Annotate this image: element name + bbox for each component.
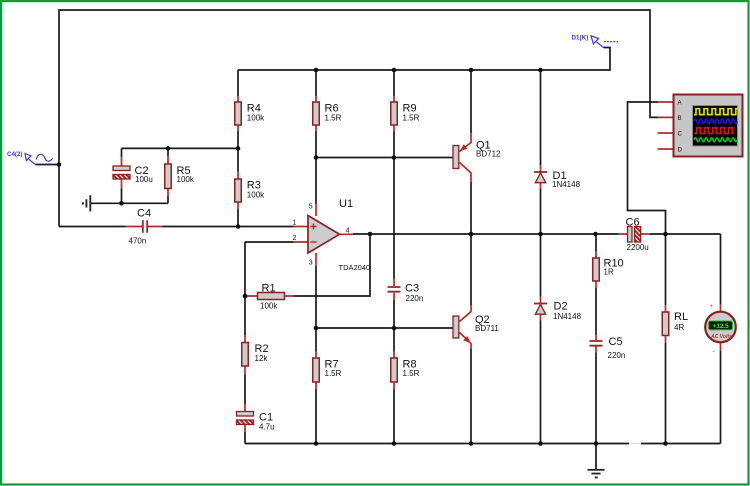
svg-text:1N4148: 1N4148 bbox=[552, 180, 581, 189]
svg-text:D2: D2 bbox=[554, 300, 568, 312]
svg-text:B: B bbox=[678, 115, 682, 122]
svg-text:1R: 1R bbox=[604, 268, 614, 277]
svg-text:1.5R: 1.5R bbox=[403, 113, 420, 122]
svg-text:3: 3 bbox=[309, 260, 313, 267]
svg-text:12k: 12k bbox=[255, 354, 269, 363]
svg-text:1N4148: 1N4148 bbox=[553, 312, 582, 321]
svg-text:BD712: BD712 bbox=[476, 149, 501, 158]
svg-text:2: 2 bbox=[293, 235, 297, 242]
svg-text:220n: 220n bbox=[608, 351, 626, 360]
svg-text:2200u: 2200u bbox=[627, 243, 649, 252]
svg-text:C4(2): C4(2) bbox=[7, 151, 22, 158]
svg-text:4.7u: 4.7u bbox=[259, 423, 275, 432]
svg-text:1.5R: 1.5R bbox=[325, 113, 342, 122]
svg-text:1: 1 bbox=[293, 220, 297, 227]
svg-text:5: 5 bbox=[309, 204, 313, 211]
svg-text:BD711: BD711 bbox=[475, 324, 499, 333]
svg-text:RL: RL bbox=[674, 311, 688, 323]
svg-text:+12.5: +12.5 bbox=[713, 323, 729, 330]
svg-text:D1(K): D1(K) bbox=[572, 35, 589, 42]
svg-text:C6: C6 bbox=[626, 217, 640, 229]
svg-text:1.5R: 1.5R bbox=[325, 369, 342, 378]
svg-text:100u: 100u bbox=[135, 175, 153, 184]
svg-text:4R: 4R bbox=[674, 323, 684, 332]
svg-text:D: D bbox=[678, 147, 683, 154]
svg-text:470n: 470n bbox=[129, 237, 147, 246]
svg-text:100k: 100k bbox=[247, 190, 265, 199]
svg-text:C: C bbox=[678, 131, 683, 138]
svg-text:U1: U1 bbox=[339, 198, 353, 210]
svg-text:TDA2040: TDA2040 bbox=[339, 263, 371, 272]
svg-text:100k: 100k bbox=[177, 175, 195, 184]
svg-text:1.5R: 1.5R bbox=[403, 369, 420, 378]
svg-text:AC Volts: AC Volts bbox=[710, 334, 732, 340]
svg-text:100k: 100k bbox=[247, 113, 265, 122]
svg-text:C4: C4 bbox=[137, 208, 151, 220]
svg-text:C3: C3 bbox=[405, 283, 419, 295]
svg-text:R1: R1 bbox=[262, 283, 276, 295]
svg-text:C5: C5 bbox=[609, 336, 623, 348]
svg-text:100k: 100k bbox=[260, 302, 278, 311]
svg-text:+: + bbox=[710, 303, 714, 310]
svg-text:220n: 220n bbox=[406, 294, 424, 303]
svg-text:4: 4 bbox=[346, 228, 350, 235]
